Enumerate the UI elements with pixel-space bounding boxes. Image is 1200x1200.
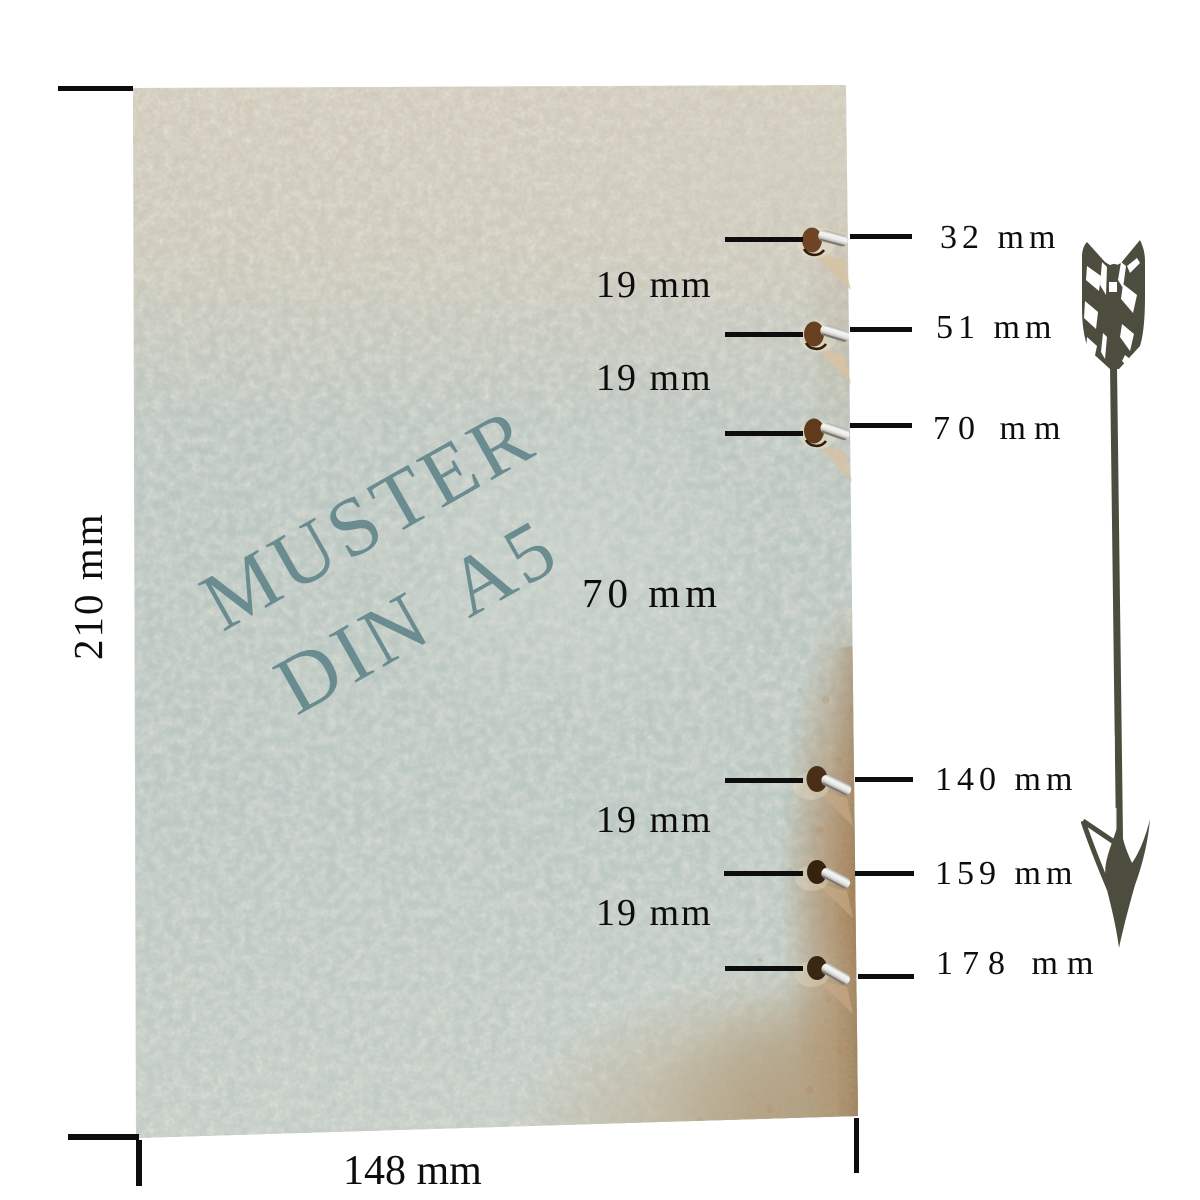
svg-text:70 mm: 70 mm [933,410,1068,447]
svg-text:32 mm: 32 mm [940,219,1060,256]
svg-text:19 mm: 19 mm [596,799,713,841]
svg-text:210 mm: 210 mm [65,512,111,660]
svg-text:70 mm: 70 mm [582,570,722,616]
svg-text:19 mm: 19 mm [596,357,713,399]
svg-text:178 mm: 178 mm [936,945,1102,982]
svg-text:159 mm: 159 mm [935,855,1077,892]
svg-text:19 mm: 19 mm [596,264,713,306]
svg-text:51 mm: 51 mm [936,309,1056,346]
svg-text:140 mm: 140 mm [935,761,1077,798]
svg-text:19 mm: 19 mm [596,892,713,934]
svg-text:148 mm: 148 mm [343,1148,482,1194]
